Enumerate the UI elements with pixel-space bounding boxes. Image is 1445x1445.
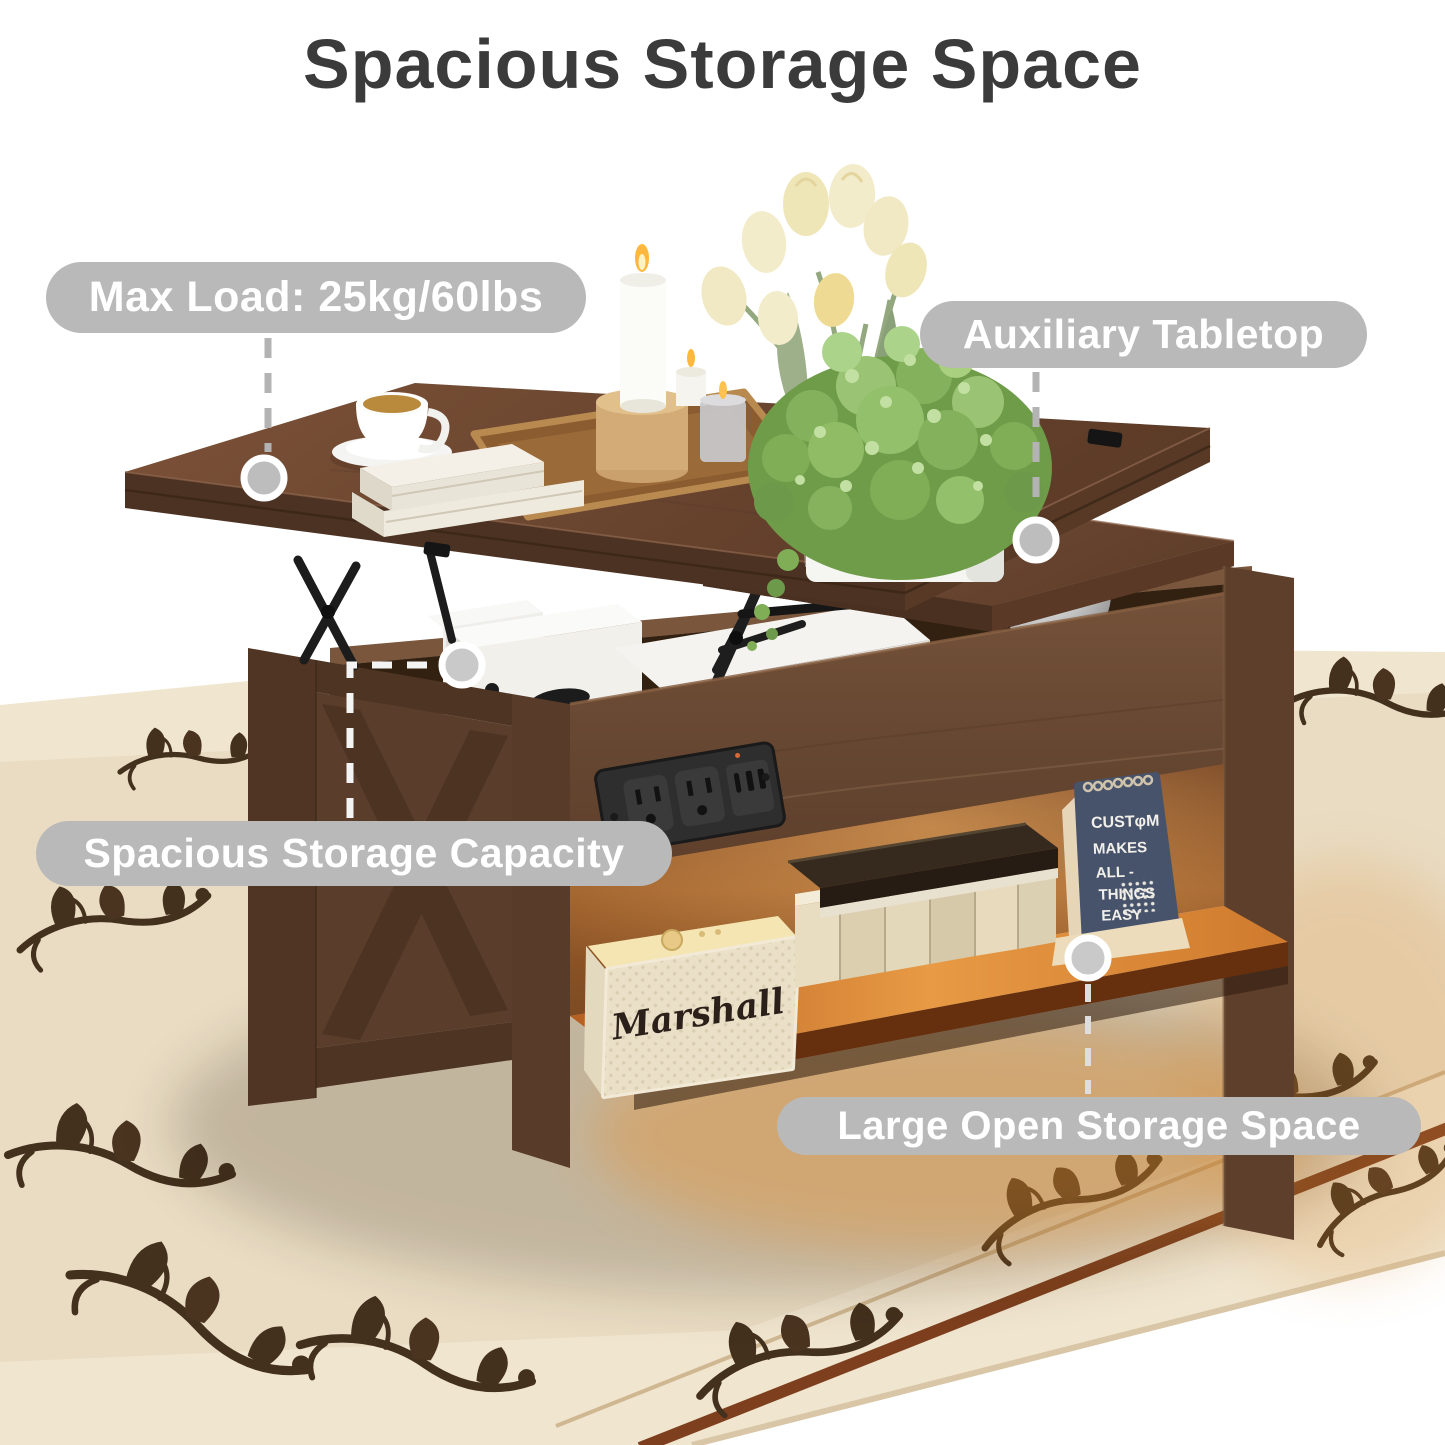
callout-dot-open-storage	[1068, 938, 1108, 978]
svg-text:CUSTφM: CUSTφM	[1091, 813, 1160, 832]
page-title: Spacious Storage Space	[0, 24, 1445, 104]
svg-text:MAKES: MAKES	[1093, 839, 1148, 858]
marshall-speaker: Marshall	[584, 916, 798, 1096]
speaker-knob	[662, 930, 682, 950]
product-infographic: Marshall	[0, 0, 1445, 1445]
callout-dot-auxiliary	[1016, 520, 1056, 560]
callout-storage-capacity: Spacious Storage Capacity	[36, 821, 672, 886]
tulip-flowers	[695, 162, 934, 347]
svg-text:ALL -: ALL -	[1096, 863, 1135, 881]
callout-auxiliary-tabletop: Auxiliary Tabletop	[920, 301, 1367, 368]
product-photo: Marshall	[0, 0, 1445, 1445]
callout-dot-capacity	[442, 645, 482, 685]
ac-outlet	[673, 765, 726, 828]
calendar-dot-grid	[1118, 877, 1158, 914]
callout-dot-max-load	[244, 458, 284, 498]
callout-open-storage: Large Open Storage Space	[777, 1097, 1421, 1155]
callout-max-load: Max Load: 25kg/60lbs	[46, 262, 586, 333]
